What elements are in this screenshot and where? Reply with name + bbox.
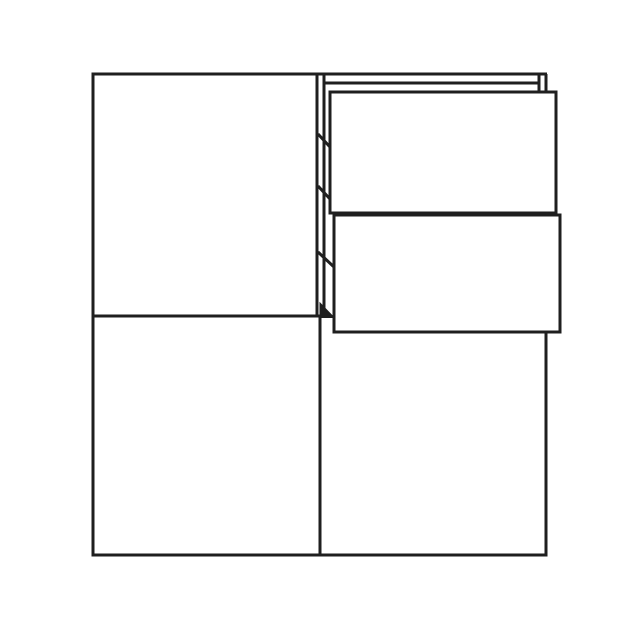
door-top-left	[93, 74, 317, 316]
runner-tick-3	[318, 252, 334, 267]
drawer-front-lower	[334, 215, 560, 332]
furniture-diagram	[0, 0, 630, 630]
drawer-front-upper	[330, 92, 556, 213]
door-bottom-left	[93, 316, 320, 555]
door-bottom-right	[320, 333, 546, 555]
diagram-svg	[0, 0, 630, 630]
runner-triangle	[320, 303, 334, 318]
